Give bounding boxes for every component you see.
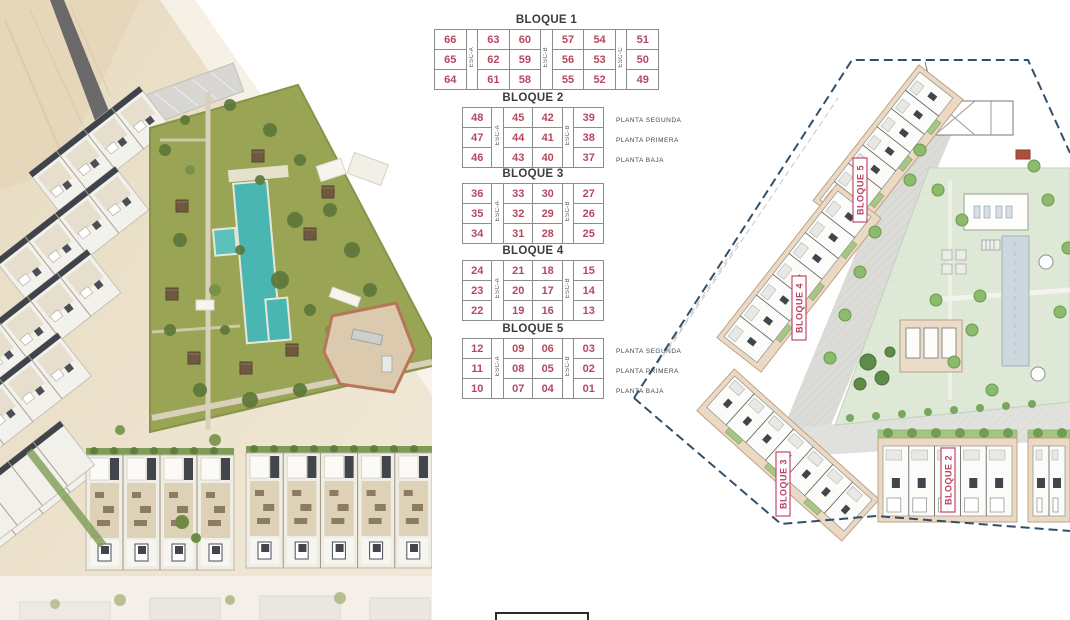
plan-label-bloque-3: BLOQUE 3 xyxy=(776,452,790,516)
unit-number: 15 xyxy=(574,261,604,281)
unit-number: 60 xyxy=(509,30,541,50)
unit-number: 18 xyxy=(533,261,562,281)
unit-number: 55 xyxy=(552,70,584,90)
unit-number: 09 xyxy=(504,339,533,359)
stairwell-label: ESC-B xyxy=(562,261,574,321)
stairwell-label: ESC-A xyxy=(492,339,504,399)
unit-number: 13 xyxy=(574,301,604,321)
stairwell-label: ESC-A xyxy=(466,30,478,90)
spiral-stair xyxy=(1031,367,1045,381)
plan-label-bloque-5: BLOQUE 5 xyxy=(853,158,867,222)
unit-number: 07 xyxy=(504,379,533,399)
unit-number: 05 xyxy=(533,359,562,379)
bloque-2-title: BLOQUE 2 xyxy=(462,92,604,104)
steps xyxy=(982,240,1000,250)
unit-number: 03 xyxy=(574,339,604,359)
plan-label-bloque-2: BLOQUE 2 xyxy=(941,448,955,512)
unit-number: 17 xyxy=(533,281,562,301)
bloque-3-table: BLOQUE 3 36ESC-A3330ESC-B273532292634312… xyxy=(462,168,604,244)
unit-number: 33 xyxy=(504,184,533,204)
unit-number: 56 xyxy=(552,50,584,70)
unit-number: 11 xyxy=(463,359,492,379)
bloque-4-title: BLOQUE 4 xyxy=(462,245,604,257)
unit-number: 41 xyxy=(533,128,562,148)
unit-number: 10 xyxy=(463,379,492,399)
unit-number: 53 xyxy=(584,50,616,70)
stairwell-label: ESC-A xyxy=(492,184,504,244)
stairwell-label: ESC-B xyxy=(562,108,574,168)
bloque-3-title: BLOQUE 3 xyxy=(462,168,604,180)
spiral-stair xyxy=(1039,255,1053,269)
unit-number: 66 xyxy=(435,30,467,50)
unit-number: 37 xyxy=(574,148,604,168)
stairwell-label: ESC-B xyxy=(541,30,553,90)
unit-number: 58 xyxy=(509,70,541,90)
townhouse-row-a xyxy=(86,447,234,570)
svg-text:BLOQUE 5: BLOQUE 5 xyxy=(856,165,866,215)
unit-number: 21 xyxy=(504,261,533,281)
unit-number: 61 xyxy=(478,70,510,90)
unit-number: 26 xyxy=(574,204,604,224)
bloque-5-table: BLOQUE 5 12ESC-A0906ESC-B031108050210070… xyxy=(462,323,604,399)
unit-number: 47 xyxy=(463,128,492,148)
svg-text:BLOQUE 2: BLOQUE 2 xyxy=(944,455,954,505)
unit-number: 20 xyxy=(504,281,533,301)
unit-number: 34 xyxy=(463,224,492,244)
unit-number: 45 xyxy=(504,108,533,128)
unit-number: 54 xyxy=(584,30,616,50)
unit-number: 35 xyxy=(463,204,492,224)
unit-number: 06 xyxy=(533,339,562,359)
bloque-2-table: BLOQUE 2 48ESC-A4542ESC-B394744413846434… xyxy=(462,92,604,168)
site-plan: BLOQUE 5 BLOQUE 4 BLOQUE 3 BLOQUE 2 xyxy=(620,0,1070,620)
unit-number: 28 xyxy=(533,224,562,244)
unit-number: 12 xyxy=(463,339,492,359)
unit-number: 42 xyxy=(533,108,562,128)
unit-number: 48 xyxy=(463,108,492,128)
unit-number: 02 xyxy=(574,359,604,379)
playground xyxy=(324,303,414,392)
unit-number: 52 xyxy=(584,70,616,90)
stairwell-label: ESC-A xyxy=(492,108,504,168)
unit-number: 46 xyxy=(463,148,492,168)
townhouse-blocks-plan xyxy=(878,428,1070,522)
unit-number: 44 xyxy=(504,128,533,148)
bloque-2-grid: 48ESC-A4542ESC-B394744413846434037 xyxy=(462,107,604,168)
unit-number: 29 xyxy=(533,204,562,224)
legend-box-partial xyxy=(495,612,589,620)
unit-number: 36 xyxy=(463,184,492,204)
unit-number: 08 xyxy=(504,359,533,379)
bloque-3-grid: 36ESC-A3330ESC-B273532292634312825 xyxy=(462,183,604,244)
unit-number: 22 xyxy=(463,301,492,321)
unit-number: 14 xyxy=(574,281,604,301)
unit-number: 30 xyxy=(533,184,562,204)
stairwell-label: ESC-A xyxy=(492,261,504,321)
unit-number: 16 xyxy=(533,301,562,321)
unit-number: 62 xyxy=(478,50,510,70)
bloque-5-title: BLOQUE 5 xyxy=(462,323,604,335)
svg-text:BLOQUE 4: BLOQUE 4 xyxy=(795,283,805,333)
unit-number: 04 xyxy=(533,379,562,399)
unit-number: 43 xyxy=(504,148,533,168)
unit-number: 25 xyxy=(574,224,604,244)
unit-number: 63 xyxy=(478,30,510,50)
unit-number: 65 xyxy=(435,50,467,70)
unit-number: 64 xyxy=(435,70,467,90)
townhouse-row-b xyxy=(246,445,432,568)
bottom-street xyxy=(0,576,432,620)
unit-number: 40 xyxy=(533,148,562,168)
svg-text:BLOQUE 3: BLOQUE 3 xyxy=(779,459,789,509)
unit-number: 57 xyxy=(552,30,584,50)
unit-number: 23 xyxy=(463,281,492,301)
bloque-5-grid: 12ESC-A0906ESC-B031108050210070401 xyxy=(462,338,604,399)
stairwell-label: ESC-B xyxy=(562,339,574,399)
unit-number: 31 xyxy=(504,224,533,244)
plan-label-bloque-4: BLOQUE 4 xyxy=(792,276,806,340)
unit-number: 19 xyxy=(504,301,533,321)
unit-number: 27 xyxy=(574,184,604,204)
bloque-4-table: BLOQUE 4 24ESC-A2118ESC-B152320171422191… xyxy=(462,245,604,321)
unit-number: 32 xyxy=(504,204,533,224)
unit-number: 39 xyxy=(574,108,604,128)
red-kiosk xyxy=(1016,150,1030,159)
stairwell-label: ESC-B xyxy=(562,184,574,244)
unit-number: 59 xyxy=(509,50,541,70)
bloque-4-grid: 24ESC-A2118ESC-B152320171422191613 xyxy=(462,260,604,321)
unit-number: 38 xyxy=(574,128,604,148)
aerial-render xyxy=(0,0,432,620)
unit-number: 01 xyxy=(574,379,604,399)
unit-number: 24 xyxy=(463,261,492,281)
brochure-page: BLOQUE 1 66ESC-A6360ESC-B5754ESC-C516562… xyxy=(0,0,1070,620)
